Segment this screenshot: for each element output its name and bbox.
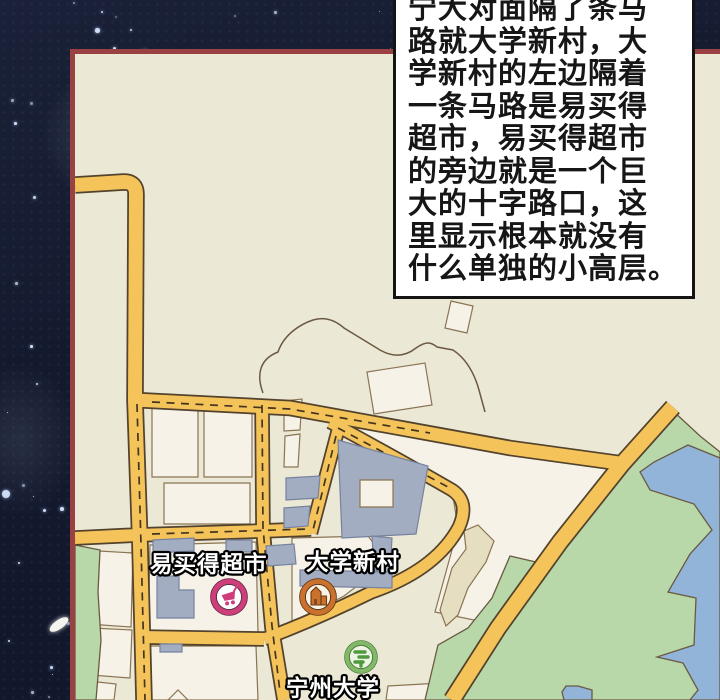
shopping-cart-icon <box>212 580 247 615</box>
supermarket-label: 易买得超市 <box>150 551 268 577</box>
supermarket-poi <box>212 580 247 615</box>
caption-box: 宁大对面隔了条马 路就大学新村，大 学新村的左边隔着 一条马路是易买得 超市，易… <box>393 0 695 299</box>
university-poi <box>345 641 377 673</box>
comet-star <box>47 615 70 635</box>
village-label: 大学新村 <box>306 549 400 575</box>
galaxy-smudge <box>0 360 80 520</box>
caption-text: 宁大对面隔了条马 路就大学新村，大 学新村的左边隔着 一条马路是易买得 超市，易… <box>396 0 692 296</box>
building-icon <box>301 580 336 615</box>
tree-icon <box>345 641 377 673</box>
university-label: 宁州大学 <box>286 675 380 700</box>
village-poi <box>301 580 336 615</box>
